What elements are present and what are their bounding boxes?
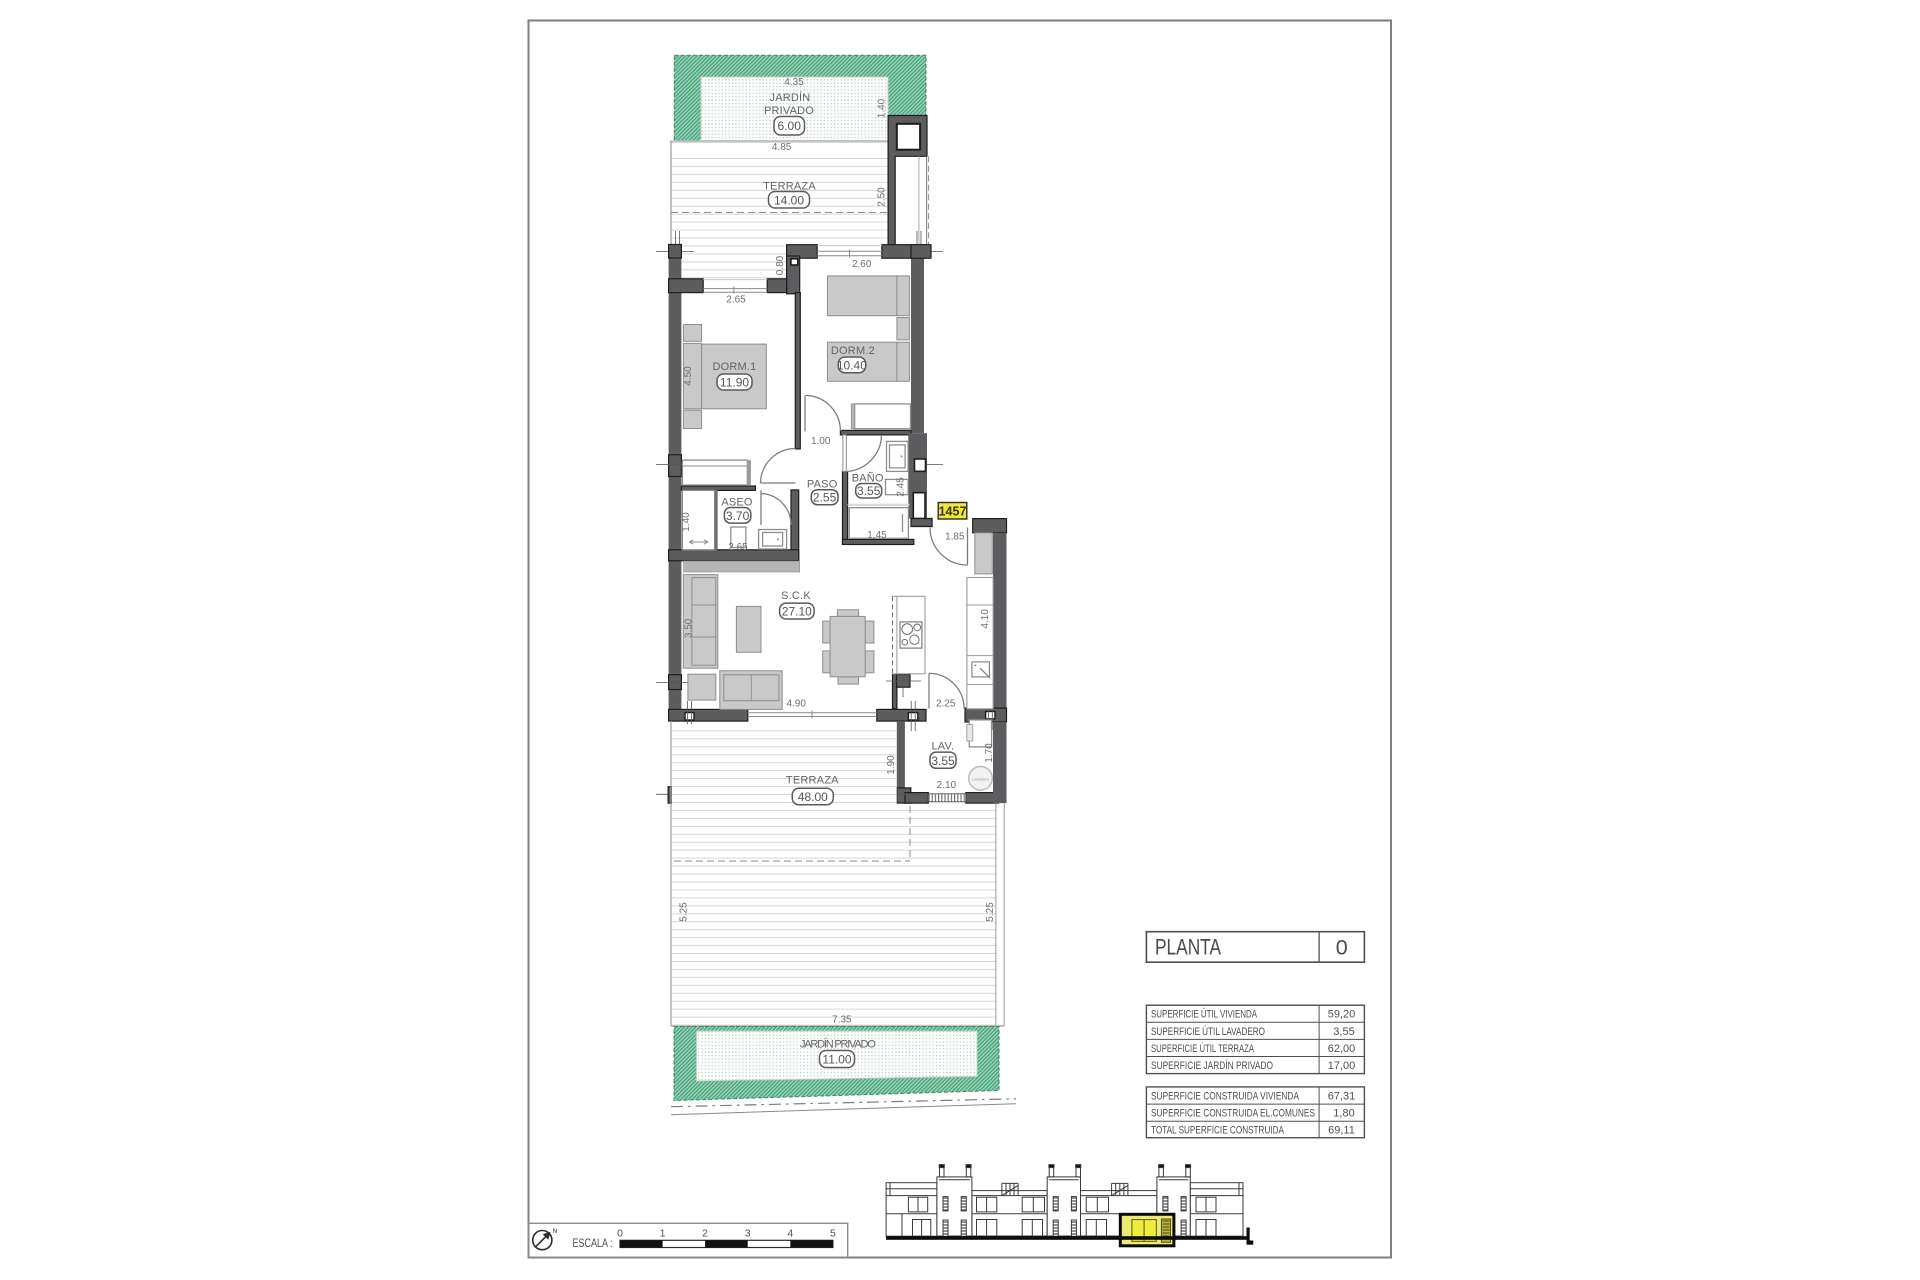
svg-text:2.50: 2.50 [877,187,888,207]
svg-text:1,80: 1,80 [1333,1108,1354,1120]
svg-text:48.00: 48.00 [798,790,828,804]
svg-text:5: 5 [830,1228,836,1240]
svg-text:3,55: 3,55 [1333,1026,1354,1038]
svg-text:3.50: 3.50 [684,618,695,638]
svg-text:JARDÍN PRIVADO: JARDÍN PRIVADO [800,1038,876,1051]
svg-text:5.25: 5.25 [678,902,689,922]
svg-text:SUPERFICIE CONSTRUIDA EL.COMUN: SUPERFICIE CONSTRUIDA EL.COMUNES [1151,1108,1315,1120]
svg-text:1.40: 1.40 [681,512,692,532]
svg-text:1.85: 1.85 [945,532,965,543]
svg-text:1.45: 1.45 [867,530,887,541]
svg-text:3.55: 3.55 [931,754,955,768]
svg-text:3.55: 3.55 [857,484,881,498]
svg-text:2.45: 2.45 [896,477,907,497]
svg-text:4.35: 4.35 [784,77,804,88]
svg-text:62,00: 62,00 [1328,1043,1356,1055]
svg-text:SUPERFICIE ÚTIL LAVADERO: SUPERFICIE ÚTIL LAVADERO [1151,1025,1265,1038]
svg-text:2.60: 2.60 [852,259,872,270]
svg-text:7.35: 7.35 [832,1015,852,1026]
svg-text:14.00: 14.00 [774,193,804,207]
svg-text:59,20: 59,20 [1328,1009,1356,1021]
svg-text:11.90: 11.90 [720,376,749,390]
svg-text:69,11: 69,11 [1328,1125,1355,1137]
svg-text:2.10: 2.10 [937,780,957,791]
svg-text:N: N [553,1228,558,1235]
svg-text:DORM.2: DORM.2 [831,345,875,357]
svg-text:3: 3 [745,1228,751,1240]
svg-text:1.00: 1.00 [811,436,831,447]
svg-text:SUPERFICIE CONSTRUIDA VIVIENDA: SUPERFICIE CONSTRUIDA VIVIENDA [1151,1091,1299,1103]
svg-text:1: 1 [660,1228,666,1240]
svg-text:27.10: 27.10 [782,605,812,619]
svg-text:Lavadora: Lavadora [972,777,989,782]
svg-text:4.90: 4.90 [786,699,806,710]
svg-text:67,31: 67,31 [1328,1091,1356,1103]
svg-text:6.00: 6.00 [778,119,802,133]
svg-text:4.50: 4.50 [683,366,694,386]
svg-text:2.65: 2.65 [726,295,746,306]
svg-text:TERRAZA: TERRAZA [786,775,839,787]
svg-text:ASEO: ASEO [721,497,753,509]
svg-text:S.C.K: S.C.K [781,590,811,602]
svg-text:2.25: 2.25 [936,699,956,710]
svg-text:PASO: PASO [807,479,838,491]
svg-text:SUPERFICIE ÚTIL VIVIENDA: SUPERFICIE ÚTIL VIVIENDA [1151,1008,1257,1021]
svg-text:TERRAZA: TERRAZA [763,181,816,193]
svg-text:10.40: 10.40 [837,358,867,372]
svg-text:BAÑO: BAÑO [852,472,884,485]
svg-text:0: 0 [1336,936,1348,960]
svg-text:4.10: 4.10 [980,609,991,629]
svg-text:0.80: 0.80 [775,255,786,275]
svg-text:4: 4 [787,1228,793,1240]
svg-text:SUPERFICIE JARDÍN PRIVADO: SUPERFICIE JARDÍN PRIVADO [1151,1059,1273,1072]
svg-text:11.00: 11.00 [822,1053,851,1067]
svg-text:TOTAL SUPERFICIE CONSTRUIDA: TOTAL SUPERFICIE CONSTRUIDA [1151,1125,1284,1137]
svg-text:3.70: 3.70 [726,509,750,523]
svg-text:2.55: 2.55 [813,491,837,505]
svg-text:1457: 1457 [939,504,967,518]
svg-text:17,00: 17,00 [1328,1060,1356,1072]
svg-text:PLANTA: PLANTA [1155,935,1221,960]
svg-text:1.70: 1.70 [984,743,995,763]
svg-text:JARDÍN: JARDÍN [770,91,811,104]
svg-text:5.25: 5.25 [985,902,996,922]
svg-text:2: 2 [702,1228,708,1240]
svg-text:DORM.1: DORM.1 [713,361,757,373]
svg-text:PRIVADO: PRIVADO [764,105,814,117]
svg-text:LAV.: LAV. [931,741,954,753]
svg-text:ESCALA :: ESCALA : [573,1238,613,1250]
svg-text:0: 0 [617,1228,623,1240]
svg-text:2.65: 2.65 [728,542,748,553]
svg-text:SUPERFICIE ÚTIL TERRAZA: SUPERFICIE ÚTIL TERRAZA [1151,1042,1254,1055]
svg-text:1.40: 1.40 [877,98,888,118]
svg-text:1.90: 1.90 [886,755,897,775]
